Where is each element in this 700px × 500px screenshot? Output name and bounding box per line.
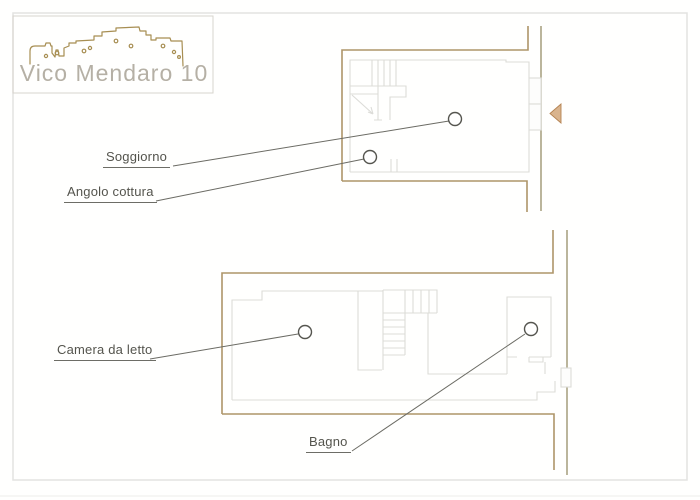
skyline-window-dots xyxy=(44,39,180,58)
staircase-lower xyxy=(383,290,437,370)
bagno-marker xyxy=(525,323,538,336)
kitchen-door-jambs xyxy=(391,159,397,172)
label-angolo-cottura: Angolo cottura xyxy=(64,184,157,203)
soggiorno-marker xyxy=(449,113,462,126)
label-bagno: Bagno xyxy=(306,434,351,453)
logo-title: Vico Mendaro 10 xyxy=(15,60,213,87)
lower-inner-bottom xyxy=(232,381,555,400)
upper-floor-plan xyxy=(156,26,561,212)
staircase-upper xyxy=(350,60,406,120)
label-camera-da-letto: Camera da letto xyxy=(54,342,156,361)
entrance-arrow-icon xyxy=(550,104,561,123)
stair-wall xyxy=(374,86,406,120)
upper-outer-walls xyxy=(342,26,528,212)
entrance-door-panel-top xyxy=(529,78,541,104)
hall-outline xyxy=(428,313,507,374)
angolo-cottura-marker xyxy=(364,151,377,164)
bagno-leader-line xyxy=(352,334,525,451)
camera-da-letto-leader-line xyxy=(150,334,298,359)
bedroom-outline xyxy=(232,291,383,400)
stair-treads-horizontal xyxy=(383,313,437,355)
stair-direction-arrow xyxy=(352,95,373,114)
camera-da-letto-marker xyxy=(299,326,312,339)
bathroom-window xyxy=(561,368,571,387)
stair-treads-vertical xyxy=(405,290,429,313)
lower-outer-walls xyxy=(222,230,554,470)
lower-floor-plan xyxy=(150,230,571,475)
soggiorno-leader-line xyxy=(173,121,449,166)
stair-treads-horizontal xyxy=(350,86,396,94)
angolo-cottura-leader-line xyxy=(156,159,364,201)
floor-plan-page: Vico Mendaro 10 Soggiorno Angolo cottura… xyxy=(0,0,700,500)
entrance-door-panel-bottom xyxy=(529,104,541,130)
label-soggiorno: Soggiorno xyxy=(103,149,170,168)
stair-treads-vertical xyxy=(372,60,396,86)
